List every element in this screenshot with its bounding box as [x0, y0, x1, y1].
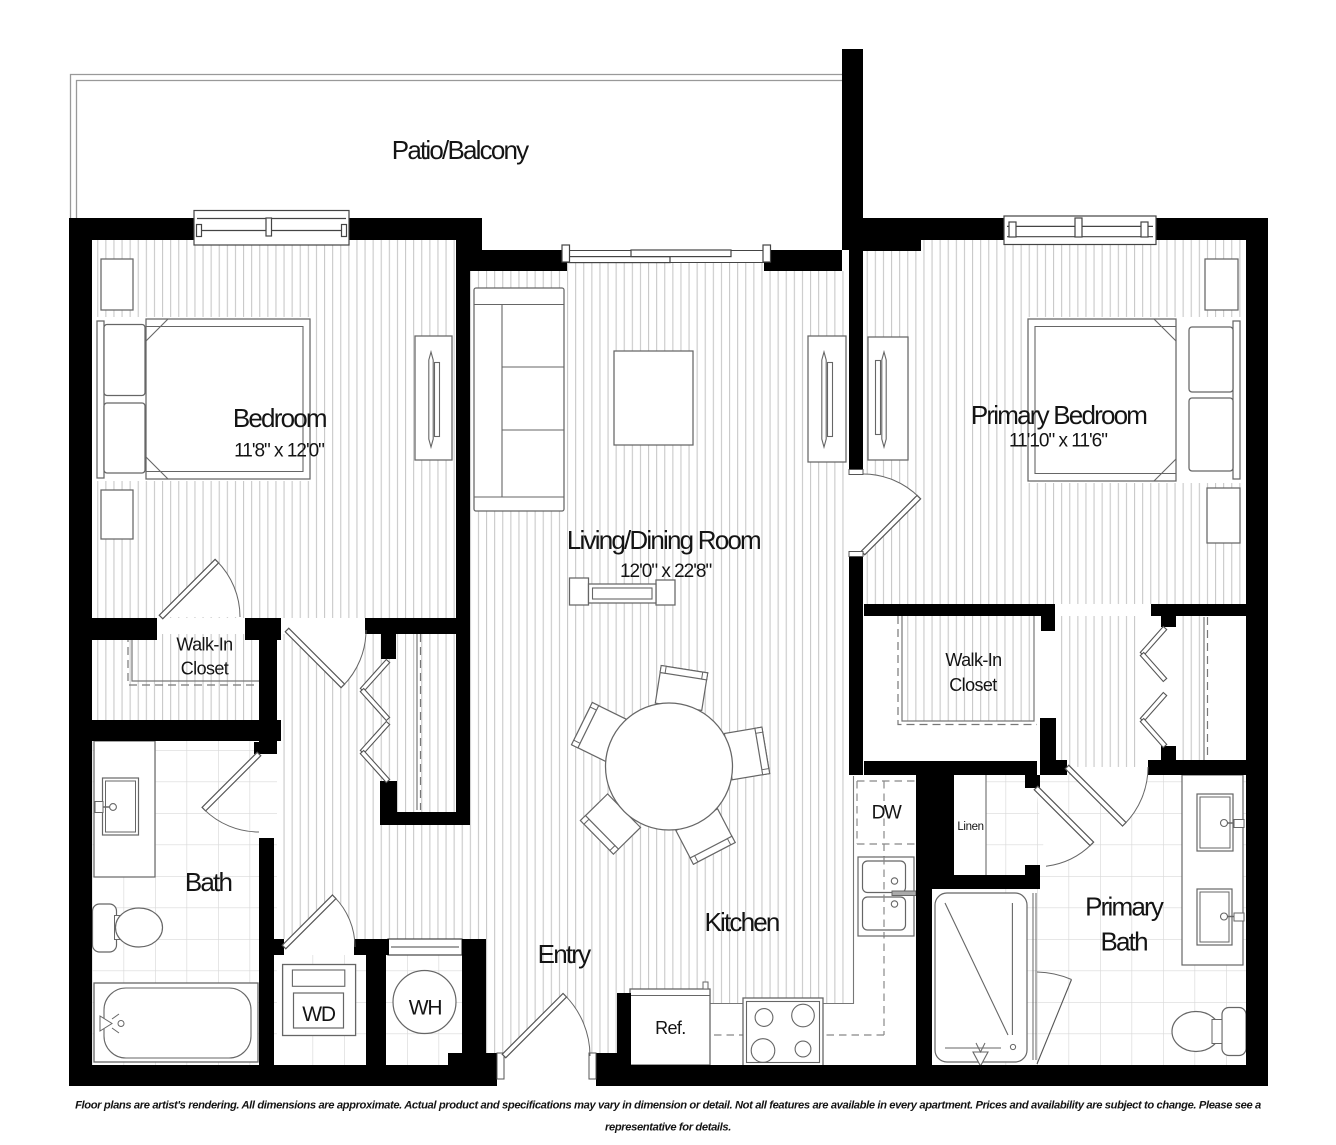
svg-text:Ref.: Ref.: [655, 1018, 686, 1038]
svg-text:WD: WD: [302, 1003, 336, 1026]
svg-text:11'8" x 12'0": 11'8" x 12'0": [234, 441, 324, 462]
svg-text:Entry: Entry: [538, 939, 591, 969]
svg-text:Primary: Primary: [1085, 892, 1164, 922]
svg-text:Floor plans are artist's rende: Floor plans are artist's rendering. All …: [75, 1100, 1261, 1112]
svg-text:representative for details.: representative for details.: [605, 1122, 731, 1134]
svg-text:12'0" x 22'8": 12'0" x 22'8": [620, 561, 711, 582]
svg-text:DW: DW: [872, 803, 902, 824]
svg-text:Kitchen: Kitchen: [704, 907, 778, 937]
svg-text:Linen: Linen: [957, 821, 983, 833]
svg-text:Walk-In: Walk-In: [945, 650, 1001, 670]
svg-text:Bath: Bath: [1100, 927, 1147, 957]
svg-text:11'10" x 11'6": 11'10" x 11'6": [1009, 431, 1107, 452]
svg-text:Closet: Closet: [949, 675, 997, 695]
svg-text:WH: WH: [409, 997, 442, 1020]
svg-text:Bedroom: Bedroom: [233, 403, 326, 433]
svg-text:Walk-In: Walk-In: [176, 635, 232, 655]
svg-text:Closet: Closet: [181, 659, 229, 679]
svg-text:Living/Dining Room: Living/Dining Room: [567, 525, 760, 555]
svg-text:Patio/Balcony: Patio/Balcony: [392, 135, 529, 165]
svg-text:Bath: Bath: [185, 867, 232, 897]
svg-text:Primary Bedroom: Primary Bedroom: [971, 400, 1146, 430]
